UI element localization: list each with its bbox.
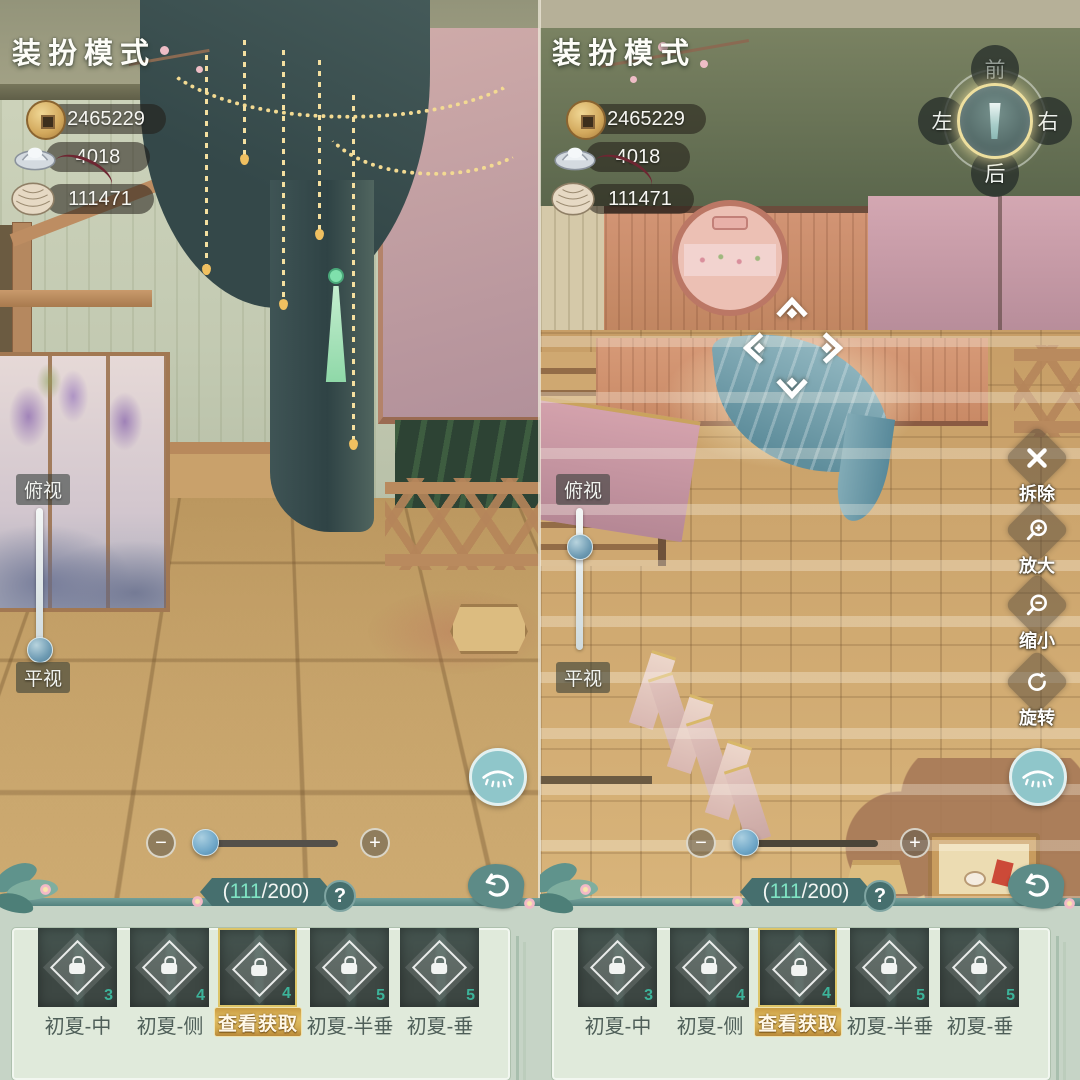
- hide-ui-button[interactable]: [469, 748, 527, 806]
- counter-open: (: [763, 880, 770, 904]
- flower-decoration: [40, 884, 51, 895]
- camera-slider-track[interactable]: [36, 508, 43, 650]
- petal: [700, 60, 708, 68]
- zoom-out-label: 缩小: [997, 627, 1077, 653]
- light-stripes-overlay: [540, 336, 1080, 906]
- rotate-icon: [1014, 659, 1060, 705]
- item-count: 4: [822, 985, 831, 1003]
- flower-decoration: [732, 896, 743, 907]
- bamboo-railing: [385, 478, 540, 570]
- page-stack-edge: [516, 936, 519, 1080]
- dpad-back-label: 后: [985, 158, 1006, 188]
- item-counter: (111/200): [740, 878, 872, 906]
- item-label: 初夏-半垂: [300, 1010, 400, 1039]
- currency-shell-value: 111471: [68, 188, 132, 211]
- zoom-in-slider-button[interactable]: +: [900, 828, 930, 858]
- flower-decoration: [580, 884, 591, 895]
- silver-ingot-icon: [552, 138, 598, 172]
- name-plaque: [712, 216, 748, 230]
- copper-coin-icon: [566, 100, 606, 140]
- zoom-slider-knob[interactable]: [192, 829, 219, 856]
- bead-string: [282, 50, 285, 300]
- blossom-fabric-panels: [868, 196, 1080, 344]
- counter-total: 200: [807, 880, 842, 904]
- item-card[interactable]: 4: [670, 928, 749, 1007]
- panel-seam: [998, 196, 1002, 332]
- lock-icon: [322, 940, 377, 995]
- camera-top-label: 俯视: [16, 474, 70, 505]
- decorate-mode-screen: 装扮模式 2465229 4018 111471 俯视 平视 − + (111/…: [0, 0, 1080, 1080]
- item-count: 5: [376, 987, 385, 1005]
- zoom-out-slider-button[interactable]: −: [146, 828, 176, 858]
- lock-icon: [412, 940, 467, 995]
- currency-shell[interactable]: 111471: [586, 184, 694, 214]
- lock-icon: [142, 940, 197, 995]
- hide-ui-button[interactable]: [1009, 748, 1067, 806]
- move-right-arrow[interactable]: [818, 330, 846, 366]
- item-card[interactable]: 4: [130, 928, 209, 1007]
- dpad-left-label: 左: [932, 106, 953, 136]
- jade-bead: [328, 268, 344, 284]
- zoom-slider-knob[interactable]: [732, 829, 759, 856]
- help-button[interactable]: ?: [864, 880, 896, 912]
- petal: [160, 46, 169, 55]
- undo-icon: [1020, 870, 1053, 903]
- item-count: 5: [466, 987, 475, 1005]
- lock-icon: [590, 940, 645, 995]
- copper-coin-icon: [26, 100, 66, 140]
- bead-string: [352, 95, 355, 440]
- camera-slider-track[interactable]: [576, 508, 583, 650]
- undo-icon: [480, 870, 513, 903]
- item-label: 初夏-中: [568, 1010, 668, 1039]
- item-count: 4: [736, 987, 745, 1005]
- rotate-label: 旋转: [997, 704, 1077, 730]
- minus-icon: −: [155, 833, 167, 853]
- camera-top-label: 俯视: [556, 474, 610, 505]
- dpad-center-preview[interactable]: [957, 83, 1033, 159]
- page-stack-edge: [1063, 942, 1066, 1080]
- bead-string: [243, 40, 246, 155]
- help-button[interactable]: ?: [324, 880, 356, 912]
- item-counter: (111/200): [200, 878, 332, 906]
- currency-shell[interactable]: 111471: [46, 184, 154, 214]
- item-card-selected[interactable]: 4: [758, 928, 837, 1007]
- lock-icon: [682, 940, 737, 995]
- low-table: [450, 604, 528, 654]
- lock-icon: [952, 940, 1007, 995]
- move-left-arrow[interactable]: [740, 330, 768, 366]
- bead-string: [318, 60, 321, 230]
- viewport-top-down: 装扮模式 2465229 4018 111471 前 左 右 后 拆除 放大 缩…: [540, 0, 1080, 1080]
- zoom-out-icon: [1014, 582, 1060, 628]
- item-card-selected[interactable]: 4: [218, 928, 297, 1007]
- item-count: 5: [916, 987, 925, 1005]
- flower-decoration: [1064, 898, 1075, 909]
- item-count: 4: [282, 985, 291, 1003]
- close-icon: [1014, 435, 1060, 481]
- zoom-in-slider-button[interactable]: +: [360, 828, 390, 858]
- item-count: 3: [644, 987, 653, 1005]
- item-card[interactable]: 5: [940, 928, 1019, 1007]
- item-count: 4: [196, 987, 205, 1005]
- view-acquire-button[interactable]: 查看获取: [214, 1007, 302, 1037]
- cowrie-shell-icon: [10, 180, 56, 218]
- wooden-bench: [165, 442, 287, 506]
- page-stack-edge: [523, 942, 526, 1080]
- bead-string: [205, 55, 208, 265]
- plus-icon: +: [909, 833, 921, 853]
- zoom-in-label: 放大: [997, 552, 1077, 578]
- lock-icon: [232, 942, 287, 997]
- page-title: 装扮模式: [12, 30, 156, 72]
- item-label: 初夏-中: [28, 1010, 128, 1039]
- item-label: 初夏-垂: [390, 1010, 490, 1039]
- plus-icon: +: [369, 833, 381, 853]
- viewport-eye-level: 装扮模式 2465229 4018 111471 俯视 平视 − + (111/…: [0, 0, 540, 1080]
- petal: [630, 76, 637, 83]
- curtain-preview-icon: [985, 103, 1005, 139]
- item-count: 3: [104, 987, 113, 1005]
- scaffold-rail: [0, 290, 152, 307]
- item-label: 初夏-半垂: [840, 1010, 940, 1039]
- item-label: 初夏-垂: [930, 1010, 1030, 1039]
- view-acquire-button[interactable]: 查看获取: [754, 1007, 842, 1037]
- flower-decoration: [524, 898, 535, 909]
- counter-total: 200: [267, 880, 302, 904]
- camera-slider-knob[interactable]: [27, 637, 53, 663]
- item-label: 初夏-侧: [660, 1010, 760, 1039]
- page-title: 装扮模式: [552, 30, 696, 72]
- currency-copper-value: 2465229: [67, 108, 145, 131]
- camera-slider-knob[interactable]: [567, 534, 593, 560]
- page-stack-edge: [1056, 936, 1059, 1080]
- item-card[interactable]: 5: [850, 928, 929, 1007]
- zoom-in-icon: [1014, 507, 1060, 553]
- item-label: 初夏-侧: [120, 1010, 220, 1039]
- silver-ingot-icon: [12, 138, 58, 172]
- move-down-arrow[interactable]: [774, 374, 810, 402]
- petal: [196, 66, 203, 73]
- dpad-right-label: 右: [1038, 106, 1059, 136]
- zoom-out-slider-button[interactable]: −: [686, 828, 716, 858]
- counter-open: (: [223, 880, 230, 904]
- eye-closed-icon: [1019, 764, 1057, 791]
- haze-strip: [540, 0, 1080, 30]
- flower-decoration: [192, 896, 203, 907]
- currency-copper-value: 2465229: [607, 108, 685, 131]
- round-window-ornament: [672, 200, 788, 316]
- camera-bottom-label: 平视: [556, 662, 610, 693]
- floral-band: [684, 244, 776, 276]
- camera-bottom-label: 平视: [16, 662, 70, 693]
- help-icon: ?: [334, 885, 346, 908]
- counter-current: 111: [230, 880, 262, 904]
- counter-close: ): [842, 880, 849, 904]
- lock-icon: [50, 940, 105, 995]
- lock-icon: [772, 942, 827, 997]
- eye-closed-icon: [479, 764, 517, 791]
- item-card[interactable]: 5: [400, 928, 479, 1007]
- move-up-arrow[interactable]: [774, 294, 810, 322]
- currency-shell-value: 111471: [608, 188, 672, 211]
- counter-close: ): [302, 880, 309, 904]
- counter-current: 111: [770, 880, 802, 904]
- item-card[interactable]: 3: [578, 928, 657, 1007]
- help-icon: ?: [874, 885, 886, 908]
- minus-icon: −: [695, 833, 707, 853]
- item-card[interactable]: 3: [38, 928, 117, 1007]
- item-card[interactable]: 5: [310, 928, 389, 1007]
- item-count: 5: [1006, 987, 1015, 1005]
- lock-icon: [862, 940, 917, 995]
- dpad-front-label: 前: [985, 54, 1006, 84]
- cowrie-shell-icon: [550, 180, 596, 218]
